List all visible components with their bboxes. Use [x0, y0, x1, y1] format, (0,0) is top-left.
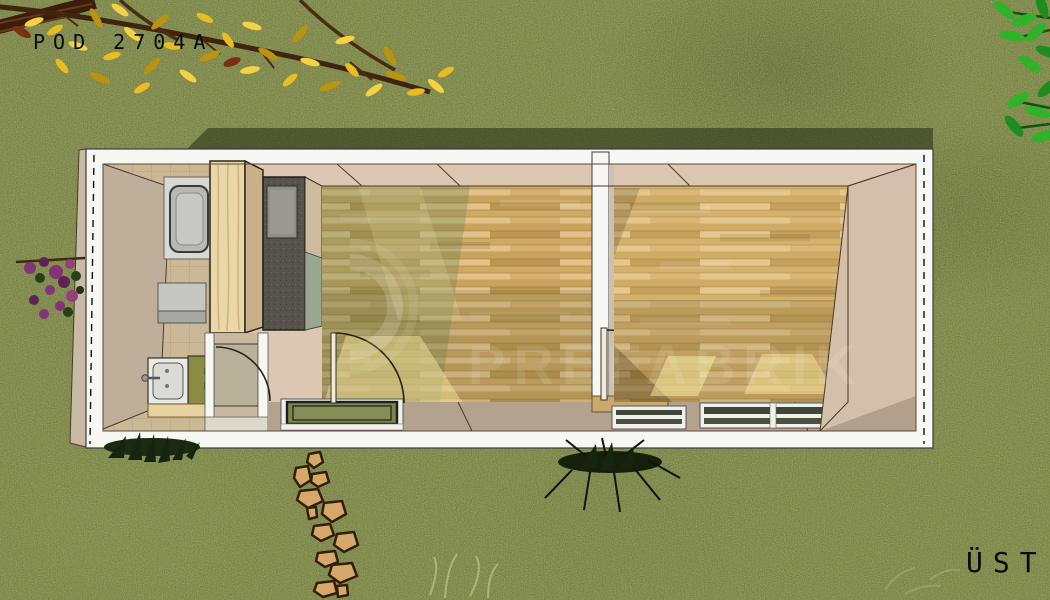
scene-svg	[0, 0, 1050, 600]
room1-window	[281, 399, 403, 430]
plan-title: POD 2704A	[33, 30, 213, 54]
threshold-board	[148, 404, 210, 417]
kitchen-counter	[263, 177, 322, 330]
building-shadow	[186, 128, 933, 150]
shower-tray	[164, 177, 211, 259]
site-plan-canvas: POD 2704A PREFABRIK ÜST	[0, 0, 1050, 600]
washbasin	[158, 283, 206, 323]
room2-window-left	[612, 406, 686, 429]
bathroom	[103, 164, 215, 431]
living-room-2	[614, 186, 848, 402]
toilet	[142, 356, 210, 404]
entry-door	[205, 333, 270, 431]
wardrobe	[210, 161, 263, 333]
pod-building	[70, 149, 933, 448]
view-label: ÜST	[966, 546, 1047, 579]
